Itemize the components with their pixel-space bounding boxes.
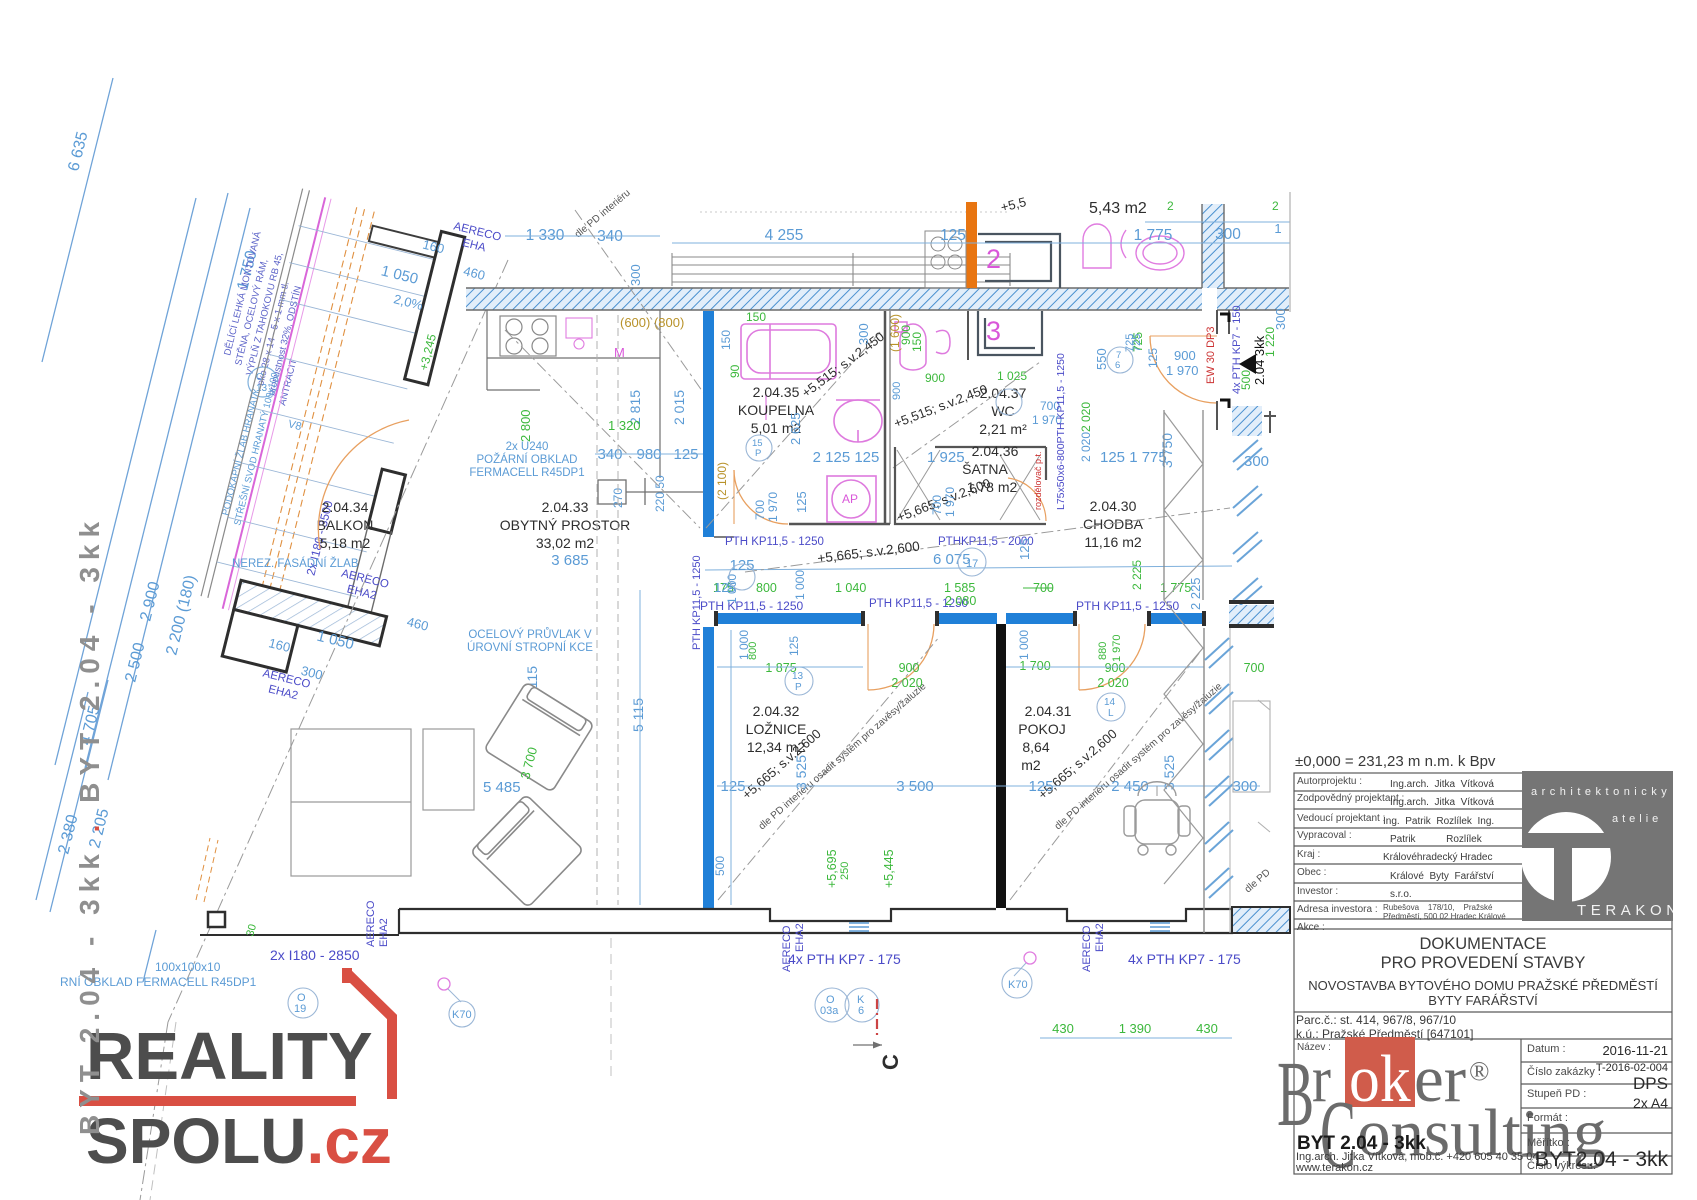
svg-text:TERAKON: TERAKON [1577, 902, 1673, 919]
svg-text:architektonicky: architektonicky [1531, 786, 1671, 798]
svg-text:atelie: atelie [1612, 813, 1662, 825]
